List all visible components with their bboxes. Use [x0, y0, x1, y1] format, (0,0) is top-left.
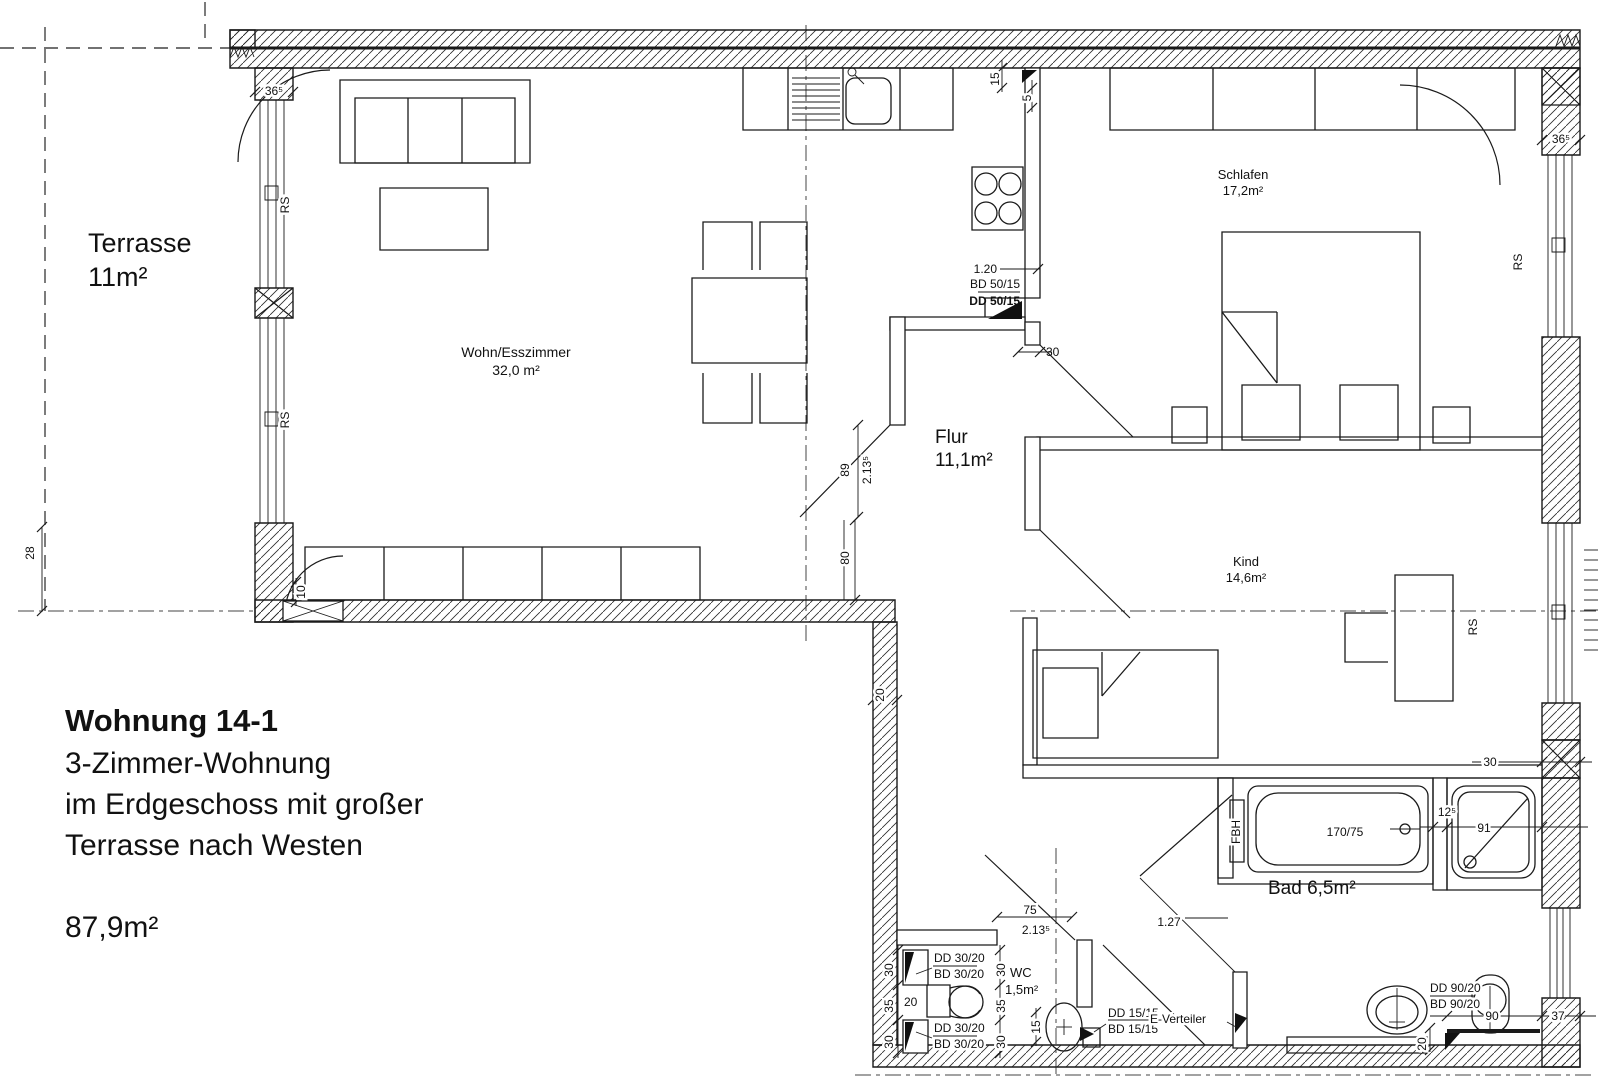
double-bed [1222, 232, 1420, 450]
dim-fbh: FBH [1229, 820, 1243, 844]
faucet [848, 68, 856, 76]
shower [1447, 778, 1542, 890]
coffee-table [380, 188, 488, 250]
stove [972, 167, 1023, 230]
dim-everteiler: E-Verteiler [1150, 1012, 1206, 1026]
dim-20-wc: 20 [904, 995, 918, 1009]
dim-28: 28 [23, 546, 37, 560]
door-leaf-kind [1040, 530, 1130, 618]
dim-bd3020-1: BD 30/20 [934, 967, 984, 981]
dim-75: 75 [1023, 903, 1037, 917]
dim-15-kitchen: 15 [988, 72, 1002, 86]
dim-rs-left1: RS [278, 197, 292, 214]
title-line1: Wohnung 14-1 [65, 703, 278, 738]
dim-rs-kind: RS [1466, 619, 1480, 636]
dim-30-wcr2: 30 [994, 1035, 1008, 1049]
dim-365-right: 36⁵ [1552, 132, 1570, 146]
kitchen-counter [743, 68, 953, 130]
sideboard [305, 547, 700, 600]
dim-rs-schlafen: RS [1511, 254, 1525, 271]
sink [846, 78, 891, 124]
room-area-flur: 11,1m² [935, 450, 993, 471]
axis-lines [0, 2, 1596, 1078]
room-area-terrasse: 11m² [88, 262, 148, 292]
room-area-kind: 14,6m² [1226, 570, 1267, 585]
dim-127: 1.27 [1157, 915, 1181, 929]
dim-20-bad: 20 [1415, 1037, 1429, 1051]
chair [703, 373, 752, 423]
door-sill-terrace [283, 601, 343, 621]
exterior-walls [230, 30, 1580, 1067]
dim-91: 91 [1477, 821, 1491, 835]
dim-tub-size: 170/75 [1327, 825, 1364, 839]
dim-90: 90 [1485, 1009, 1499, 1023]
shutter-ticks [1584, 550, 1598, 650]
title-line4: Terrasse nach Westen [65, 829, 363, 862]
dim-35-wcl: 35 [882, 999, 896, 1013]
dim-30-wcr1: 30 [994, 963, 1008, 977]
dim-dd5015: DD 50/15 [969, 294, 1020, 308]
furniture-kind [1033, 575, 1453, 758]
toilet-wc [927, 985, 983, 1018]
dim-35-wcr: 35 [994, 999, 1008, 1013]
dim-dd3020-2: DD 30/20 [934, 1021, 985, 1035]
dining-table [692, 278, 807, 363]
door-arc-top-right [1400, 85, 1500, 185]
pier-x-top-right [1542, 68, 1580, 105]
dim-125: 12⁵ [1438, 805, 1456, 819]
window-living-1 [260, 100, 284, 288]
dim-30-pier: 30 [1483, 755, 1497, 769]
washbasin-bad [1287, 986, 1427, 1053]
dim-2135-flur: 2.13⁵ [860, 456, 874, 484]
dim-bd9020: BD 90/20 [1430, 997, 1480, 1011]
wardrobe [1110, 68, 1515, 130]
fixtures-wc [903, 70, 1247, 1053]
desk-chair [1345, 613, 1388, 662]
furniture-living [305, 68, 1023, 600]
room-label-flur: Flur [935, 427, 968, 448]
room-label-schlafen: Schlafen [1218, 167, 1269, 182]
floor-plan-drawing: Terrasse 11m² Wohn/Esszimmer 32,0 m² Sch… [0, 0, 1604, 1080]
chair [703, 222, 752, 270]
dim-89: 89 [838, 463, 852, 477]
interior-walls [890, 68, 1542, 1048]
washbasin-wc [1046, 1003, 1100, 1051]
dim-bd3020-2: BD 30/20 [934, 1037, 984, 1051]
dim-20-wall: 20 [873, 688, 887, 702]
room-label-wc: WC [1010, 965, 1032, 980]
dim-30-schlafen-door: 30 [1046, 345, 1060, 359]
windows [260, 100, 1598, 998]
window-kind [1548, 523, 1598, 703]
room-label-kind: Kind [1233, 554, 1259, 569]
dim-5-kitchen: 5 [1020, 94, 1034, 101]
dim-dd9020: DD 90/20 [1430, 981, 1481, 995]
room-area-wc: 1,5m² [1005, 982, 1039, 997]
dim-rs-left2: RS [278, 412, 292, 429]
door-chord-bad [1140, 878, 1235, 972]
window-schlafen [1548, 155, 1572, 337]
title-block: Wohnung 14-1 3-Zimmer-Wohnung im Erdgesc… [65, 703, 423, 944]
room-area-wohn: 32,0 m² [492, 362, 540, 378]
title-line3: im Erdgeschoss mit großer [65, 788, 423, 821]
dim-dd3020-1: DD 30/20 [934, 951, 985, 965]
single-bed [1033, 650, 1218, 758]
room-label-bad: Bad 6,5m² [1268, 878, 1356, 899]
dim-15-wc: 15 [1029, 1020, 1043, 1034]
dim-2135-wc: 2.13⁵ [1022, 923, 1050, 937]
room-label-terrasse: Terrasse [88, 228, 192, 258]
dim-30-wcl2: 30 [882, 1035, 896, 1049]
furniture-schlafen [1110, 68, 1515, 450]
dim-80: 80 [838, 551, 852, 565]
dim-120: 1.20 [974, 262, 998, 276]
chair [760, 373, 807, 423]
title-area: 87,9m² [65, 911, 158, 944]
room-label-wohn: Wohn/Esszimmer [461, 344, 571, 360]
dim-37: 37 [1551, 1009, 1565, 1023]
chair [760, 222, 807, 270]
window-bad [1550, 908, 1570, 998]
floor-plan: Terrasse 11m² Wohn/Esszimmer 32,0 m² Sch… [0, 0, 1604, 1080]
drainer [792, 78, 840, 120]
dim-10: 10 [294, 585, 308, 599]
dim-30-wcl1: 30 [882, 963, 896, 977]
room-area-schlafen: 17,2m² [1223, 183, 1264, 198]
title-line2: 3-Zimmer-Wohnung [65, 747, 331, 780]
dim-wall-365-left: 36⁵ [265, 84, 283, 98]
desk [1395, 575, 1453, 701]
dim-bd5015: BD 50/15 [970, 277, 1020, 291]
duct-wedge-basin [1080, 1027, 1094, 1041]
sofa [340, 80, 530, 163]
